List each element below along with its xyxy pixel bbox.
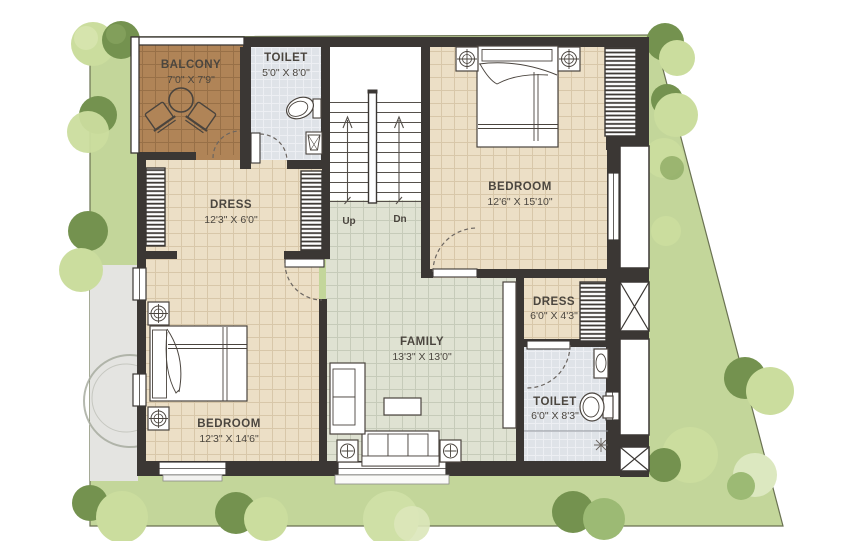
svg-text:12'3" X 6'0": 12'3" X 6'0" (204, 214, 258, 226)
svg-text:TOILET: TOILET (533, 396, 577, 408)
svg-text:5'0" X 8'0": 5'0" X 8'0" (262, 67, 310, 79)
svg-text:BALCONY: BALCONY (161, 59, 221, 71)
svg-text:13'3" X 13'0": 13'3" X 13'0" (392, 351, 452, 363)
svg-text:BEDROOM: BEDROOM (197, 418, 261, 430)
svg-text:Dn: Dn (393, 214, 406, 225)
svg-text:FAMILY: FAMILY (400, 336, 444, 348)
svg-text:DRESS: DRESS (210, 199, 252, 211)
svg-text:7'0" X 7'9": 7'0" X 7'9" (167, 74, 215, 86)
svg-text:DRESS: DRESS (533, 296, 575, 308)
svg-text:12'3" X 14'6": 12'3" X 14'6" (199, 433, 259, 445)
svg-text:Up: Up (342, 216, 355, 227)
svg-text:TOILET: TOILET (264, 52, 308, 64)
svg-text:BEDROOM: BEDROOM (488, 181, 552, 193)
svg-text:6'0" X 4'3": 6'0" X 4'3" (530, 310, 578, 322)
svg-text:12'6" X 15'10": 12'6" X 15'10" (487, 196, 552, 208)
svg-text:6'0" X 8'3": 6'0" X 8'3" (531, 410, 579, 422)
